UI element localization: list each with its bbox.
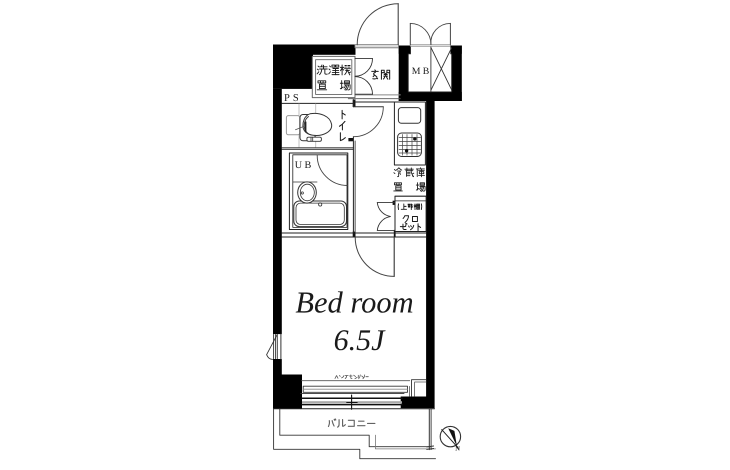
svg-text:6.5J: 6.5J xyxy=(334,324,387,357)
svg-text:N: N xyxy=(455,445,460,452)
svg-text:PS: PS xyxy=(284,93,302,104)
svg-text:Bed room: Bed room xyxy=(295,286,413,320)
svg-text:MB: MB xyxy=(412,66,432,77)
svg-text:UB: UB xyxy=(295,160,314,171)
